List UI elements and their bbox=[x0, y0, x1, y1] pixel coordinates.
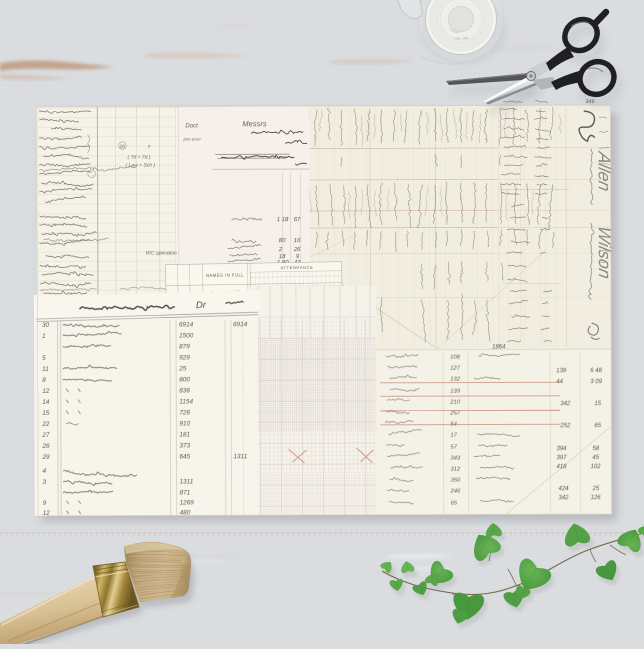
svg-text:102: 102 bbox=[590, 464, 601, 470]
svg-text:14: 14 bbox=[42, 399, 50, 406]
svg-text:342: 342 bbox=[560, 401, 571, 407]
svg-text:17: 17 bbox=[450, 433, 457, 439]
svg-text:16: 16 bbox=[294, 238, 301, 244]
svg-text:65: 65 bbox=[451, 501, 458, 507]
svg-text:139: 139 bbox=[556, 368, 567, 374]
svg-text:80: 80 bbox=[279, 238, 286, 244]
svg-text:NAMES IN FULL: NAMES IN FULL bbox=[206, 272, 245, 278]
svg-text:1311: 1311 bbox=[180, 478, 194, 485]
svg-text:4: 4 bbox=[42, 468, 46, 475]
svg-text:26: 26 bbox=[293, 247, 301, 253]
svg-text:350: 350 bbox=[451, 478, 461, 484]
svg-text:57: 57 bbox=[450, 445, 457, 451]
svg-text:( Law + Sch ): ( Law + Sch ) bbox=[126, 163, 156, 169]
svg-text:67: 67 bbox=[294, 217, 301, 223]
svg-text:210: 210 bbox=[449, 400, 460, 406]
svg-text:108: 108 bbox=[450, 355, 460, 361]
svg-text:R/C operation %: R/C operation % bbox=[146, 250, 183, 256]
svg-text:27: 27 bbox=[41, 432, 50, 439]
svg-text:25: 25 bbox=[178, 365, 187, 372]
svg-text:257: 257 bbox=[449, 411, 460, 417]
svg-text:132: 132 bbox=[450, 377, 460, 383]
svg-text:246: 246 bbox=[450, 489, 461, 495]
svg-text:22: 22 bbox=[41, 421, 50, 428]
svg-text:1311: 1311 bbox=[233, 453, 247, 460]
svg-text:139: 139 bbox=[450, 389, 460, 395]
svg-text:2: 2 bbox=[278, 247, 283, 253]
svg-text:6914: 6914 bbox=[179, 321, 194, 328]
svg-text:ATTENDANCE: ATTENDANCE bbox=[281, 265, 314, 271]
svg-text:373: 373 bbox=[179, 442, 190, 449]
svg-text:1864: 1864 bbox=[492, 344, 506, 350]
svg-text:424: 424 bbox=[559, 486, 570, 492]
svg-text:Doct: Doct bbox=[185, 123, 198, 129]
svg-text:929: 929 bbox=[179, 354, 190, 361]
svg-text:645: 645 bbox=[179, 453, 190, 460]
svg-text:252: 252 bbox=[559, 423, 571, 429]
svg-text:25: 25 bbox=[592, 486, 600, 492]
svg-text:58: 58 bbox=[592, 446, 599, 452]
svg-text:( 7d + 7d ): ( 7d + 7d ) bbox=[128, 155, 151, 161]
svg-text:127: 127 bbox=[450, 366, 460, 372]
svg-text:Wilson: Wilson bbox=[595, 224, 615, 281]
svg-text:879: 879 bbox=[179, 343, 190, 350]
svg-text:15: 15 bbox=[594, 401, 601, 407]
svg-text:Messrs: Messrs bbox=[242, 119, 266, 128]
svg-text:8: 8 bbox=[42, 377, 46, 384]
svg-text:726: 726 bbox=[179, 409, 190, 416]
svg-text:312: 312 bbox=[450, 467, 460, 473]
svg-text:9: 9 bbox=[43, 500, 47, 507]
svg-text:29: 29 bbox=[41, 454, 50, 461]
svg-text:?: ? bbox=[147, 145, 150, 151]
svg-text:1500: 1500 bbox=[179, 332, 194, 339]
svg-text:15: 15 bbox=[42, 410, 50, 417]
svg-text:5: 5 bbox=[42, 355, 46, 362]
svg-text:800: 800 bbox=[179, 376, 190, 383]
svg-text:11: 11 bbox=[42, 366, 49, 373]
svg-text:1154: 1154 bbox=[179, 398, 193, 405]
svg-text:1: 1 bbox=[42, 333, 46, 340]
svg-text:343: 343 bbox=[450, 456, 460, 462]
svg-text:pas pour: pas pour bbox=[182, 136, 201, 141]
svg-text:Dr: Dr bbox=[196, 300, 207, 311]
svg-text:397: 397 bbox=[556, 455, 567, 461]
svg-text:181: 181 bbox=[179, 431, 190, 438]
svg-text:871: 871 bbox=[180, 489, 191, 496]
svg-text:6 48: 6 48 bbox=[590, 368, 602, 374]
svg-text:30: 30 bbox=[42, 322, 50, 329]
svg-text:65: 65 bbox=[594, 423, 601, 429]
svg-text:20: 20 bbox=[118, 144, 125, 150]
svg-text:1269: 1269 bbox=[180, 499, 195, 506]
svg-text:394: 394 bbox=[556, 446, 567, 452]
svg-text:3: 3 bbox=[43, 479, 47, 486]
svg-text:45: 45 bbox=[592, 455, 599, 461]
svg-text:342: 342 bbox=[559, 495, 570, 501]
svg-text:836: 836 bbox=[179, 387, 190, 394]
svg-text:Allen: Allen bbox=[595, 149, 615, 193]
svg-text:3 09: 3 09 bbox=[590, 379, 602, 385]
svg-text:1 18: 1 18 bbox=[277, 217, 289, 223]
svg-text:26: 26 bbox=[41, 443, 50, 450]
svg-text:126: 126 bbox=[591, 495, 602, 501]
svg-text:6914: 6914 bbox=[233, 321, 248, 328]
svg-text:12: 12 bbox=[42, 388, 50, 395]
svg-text:910: 910 bbox=[179, 420, 190, 427]
